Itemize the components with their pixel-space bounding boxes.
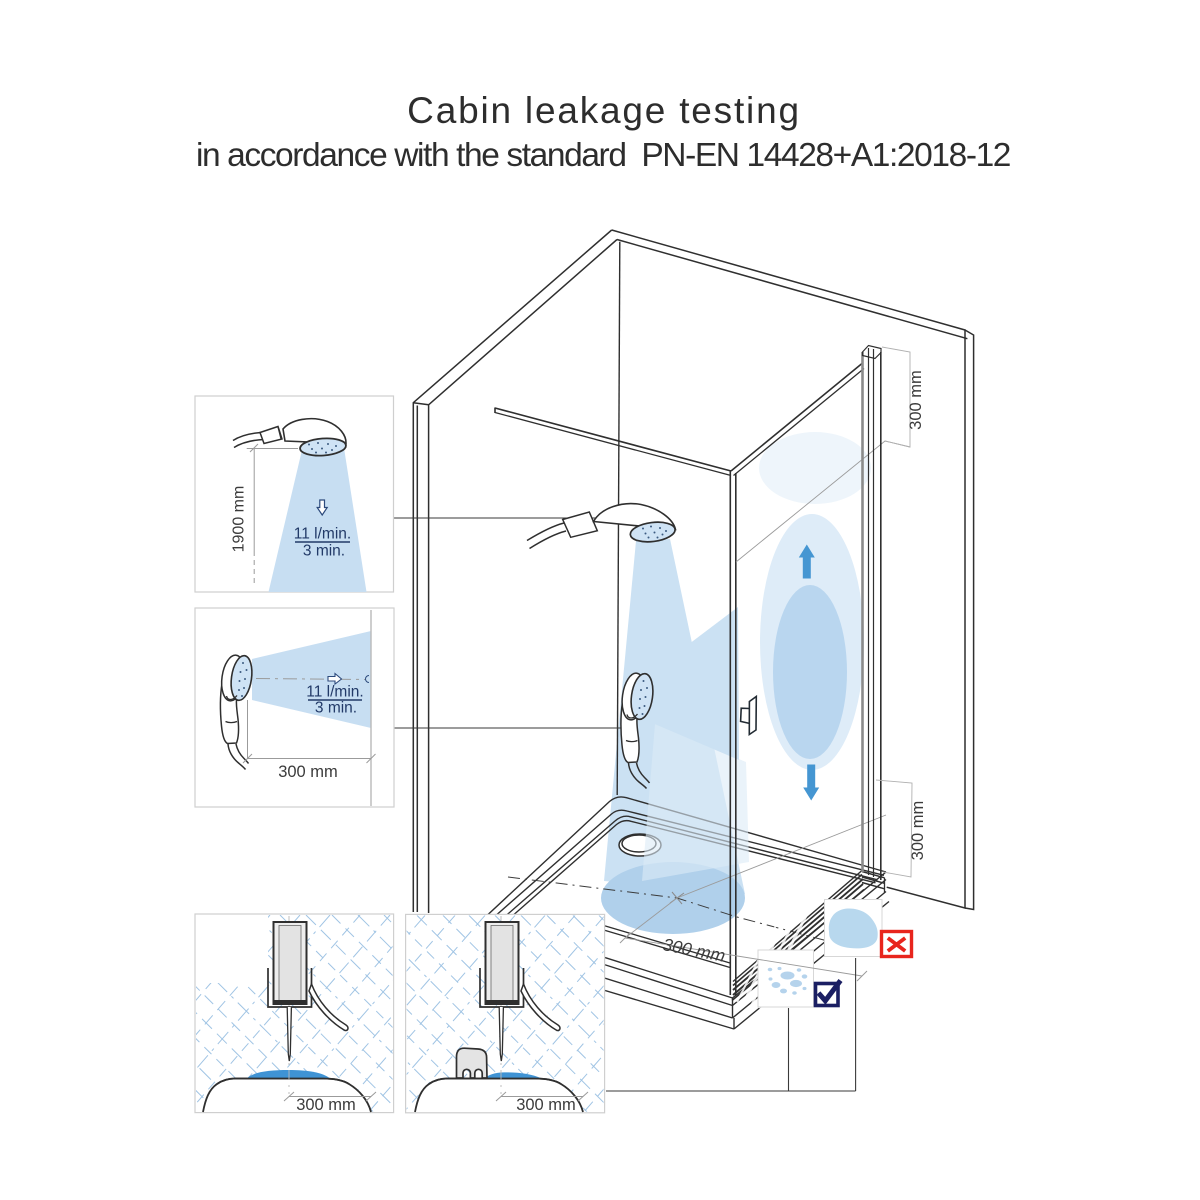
svg-text:11 l/min.: 11 l/min. <box>306 684 363 701</box>
svg-text:Cabin leakage testing: Cabin leakage testing <box>407 90 801 131</box>
svg-text:3 min.: 3 min. <box>303 543 345 560</box>
svg-text:300 mm: 300 mm <box>278 763 338 781</box>
svg-text:11 l/min.: 11 l/min. <box>294 526 351 543</box>
svg-text:300 mm: 300 mm <box>909 801 927 861</box>
svg-text:300 mm: 300 mm <box>907 370 925 430</box>
svg-text:300 mm: 300 mm <box>661 934 727 966</box>
svg-text:300 mm: 300 mm <box>296 1096 356 1114</box>
svg-text:1900 mm: 1900 mm <box>231 486 248 553</box>
svg-text:300 mm: 300 mm <box>516 1096 576 1114</box>
svg-text:3 min.: 3 min. <box>315 700 357 717</box>
svg-text:in accordance with the standar: in accordance with the standard PN-EN 14… <box>196 137 1010 174</box>
